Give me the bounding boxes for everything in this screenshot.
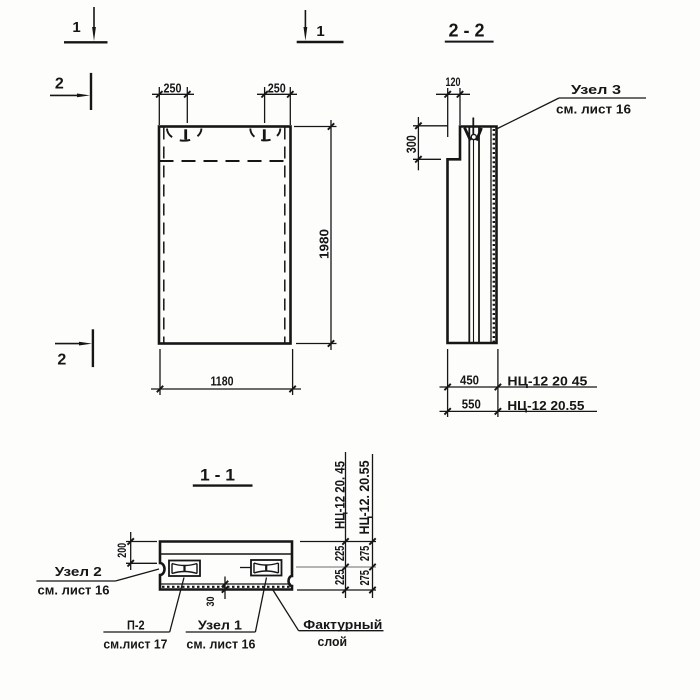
svg-text:2 - 2: 2 - 2 [449,20,485,40]
svg-text:Фактурный: Фактурный [303,617,382,632]
svg-text:250: 250 [268,81,286,96]
svg-text:120: 120 [446,75,461,89]
svg-text:225: 225 [333,569,347,585]
svg-text:300: 300 [404,135,419,153]
svg-text:275: 275 [358,570,372,586]
svg-text:НЦ-12. 20.55: НЦ-12. 20.55 [356,460,372,534]
svg-text:2: 2 [55,76,64,93]
svg-text:см. лист 16: см. лист 16 [556,102,631,117]
svg-text:1: 1 [72,19,80,36]
svg-text:П-2: П-2 [127,618,145,633]
svg-text:Узел 1: Узел 1 [198,618,242,633]
svg-text:30: 30 [205,597,217,607]
svg-text:550: 550 [462,397,481,412]
svg-text:1980: 1980 [317,229,332,259]
svg-text:слой: слой [318,634,348,649]
svg-text:450: 450 [460,372,479,387]
svg-text:см. лист 16: см. лист 16 [186,637,255,652]
svg-text:НЦ-12 20.55: НЦ-12 20.55 [507,398,584,413]
svg-text:см. лист 16: см. лист 16 [38,582,110,597]
svg-text:1: 1 [316,23,324,40]
svg-text:250: 250 [164,81,182,96]
svg-text:Узел 2: Узел 2 [55,564,102,579]
svg-text:НЦ-12 20. 45: НЦ-12 20. 45 [332,461,348,529]
svg-text:2: 2 [57,351,66,368]
svg-text:200: 200 [115,543,129,558]
svg-text:275: 275 [358,546,372,562]
svg-text:1180: 1180 [211,373,234,388]
svg-text:Узел 3: Узел 3 [571,82,621,97]
svg-text:НЦ-12 20 45: НЦ-12 20 45 [507,374,587,389]
svg-text:см.лист 17: см.лист 17 [103,637,167,652]
svg-text:225: 225 [333,546,347,562]
svg-text:1 - 1: 1 - 1 [200,466,235,485]
